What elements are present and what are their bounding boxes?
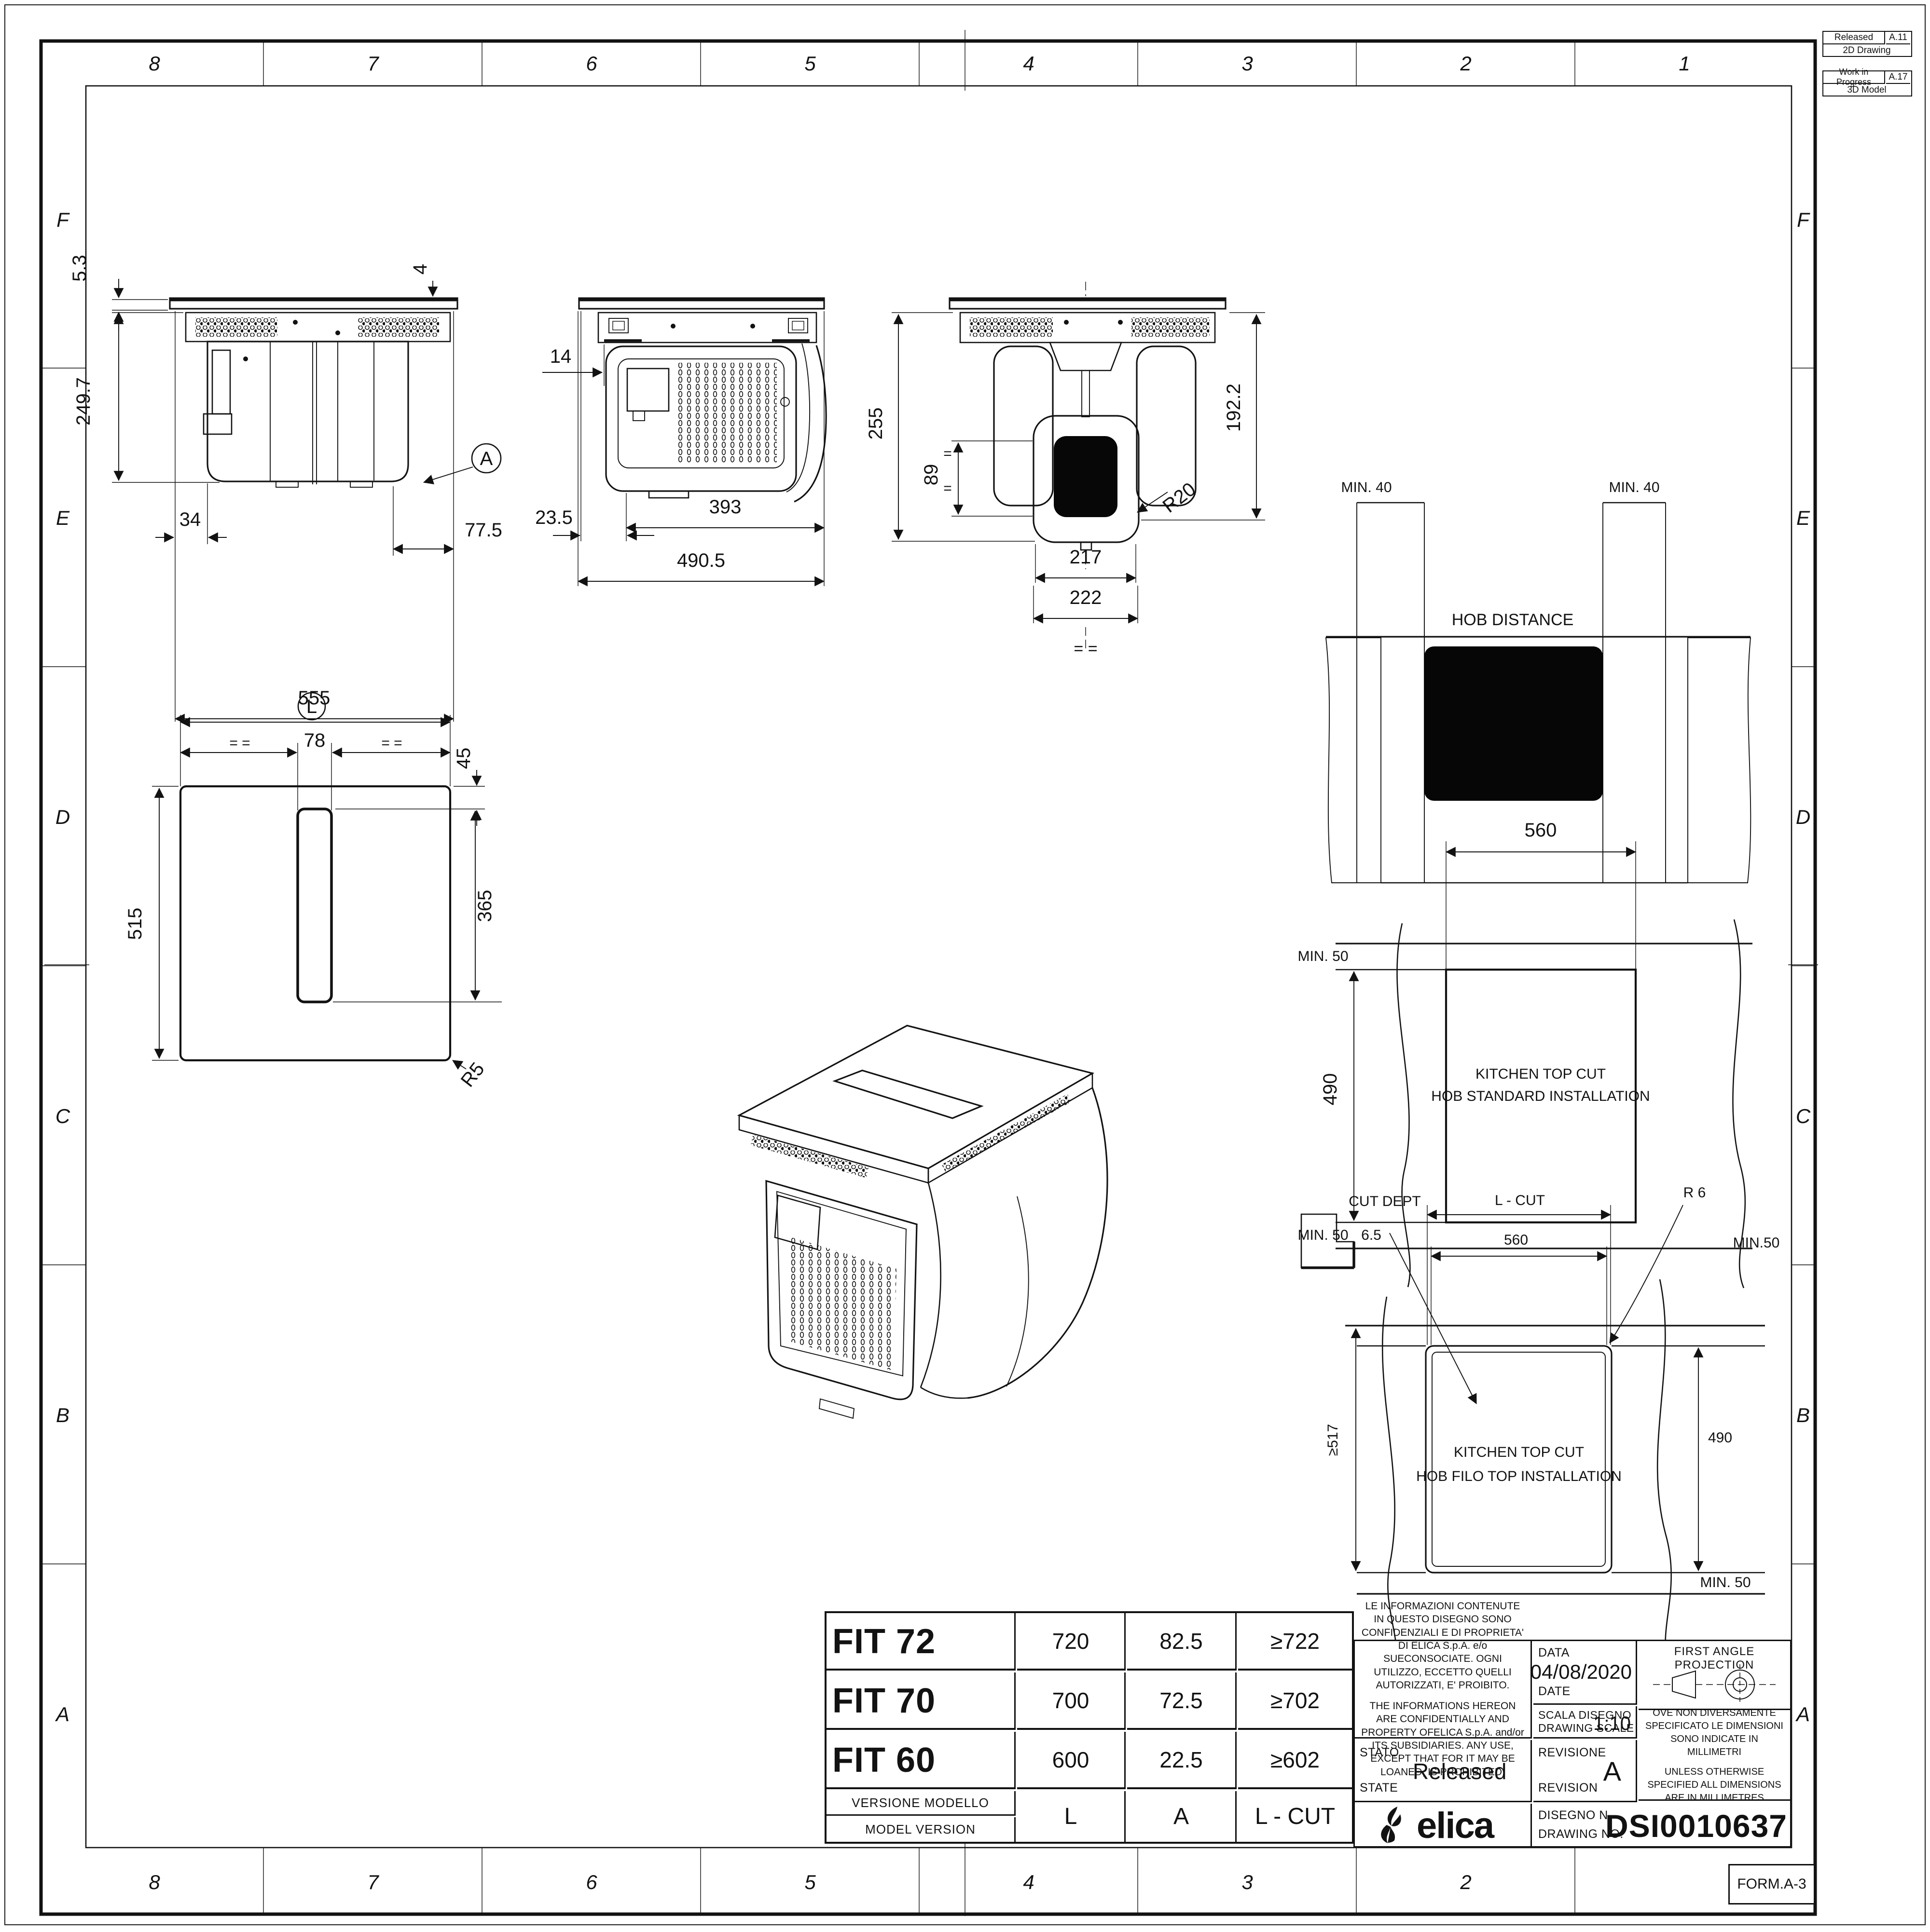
projection-cell: FIRST ANGLE PROJECTION <box>1639 1641 1790 1710</box>
cut-dept-label: CUT DEPT <box>1349 1193 1420 1209</box>
side-section-view: 14 23.5 393 490.5 <box>535 298 826 586</box>
dim-total-width: 490.5 <box>677 550 725 571</box>
revision-kind: 3D Model <box>1823 85 1910 96</box>
grid-col-bottom: 3 <box>1241 1871 1253 1893</box>
front-section-view: 5.3 4 249.7 34 77.5 555 A <box>69 255 502 722</box>
revision-kind: 2D Drawing <box>1823 45 1910 56</box>
grid-col-top: 7 <box>367 52 379 75</box>
grid-row-left: E <box>56 507 70 529</box>
grid-row-right: D <box>1796 806 1810 828</box>
grid-row-right: B <box>1796 1404 1810 1426</box>
equal-mark: = <box>943 480 952 496</box>
units-note-cell: OVE NON DIVERSAMENTE SPECIFICATO LE DIME… <box>1639 1712 1790 1801</box>
dim-body-width: 393 <box>709 496 742 518</box>
dim-cut-width: 560 <box>1504 1232 1528 1248</box>
equal-marks: = = <box>1074 640 1097 658</box>
dim-slot-offset: 45 <box>453 748 474 769</box>
min-bottom: MIN. 50 <box>1700 1575 1751 1590</box>
grid-col-top: 8 <box>149 52 160 75</box>
state-cell: STATO STATE Released <box>1355 1740 1532 1802</box>
dim-slot-width: 78 <box>304 730 326 751</box>
units-note-en: UNLESS OTHERWISE SPECIFIED ALL DIMENSION… <box>1644 1766 1784 1805</box>
dim-offset-front: 14 <box>550 346 572 367</box>
brand-cell: elica <box>1355 1804 1532 1846</box>
grid-row-right: C <box>1796 1105 1811 1127</box>
table-cell-lcut: ≥722 <box>1238 1613 1352 1671</box>
revision-status: Work in Progress <box>1823 71 1885 84</box>
grid-col-bottom: 6 <box>586 1871 597 1893</box>
grid-col-top: 1 <box>1679 52 1690 75</box>
footer-col-lcut: L - CUT <box>1238 1791 1352 1842</box>
grid-row-left: F <box>56 208 70 231</box>
table-cell-lcut: ≥602 <box>1238 1732 1352 1789</box>
form-designation: FORM.A-3 <box>1728 1864 1815 1905</box>
dim-corner-radius: R 6 <box>1683 1185 1706 1201</box>
filo-cut-view: CUT DEPT 6.5 L - CUT 560 R 6 MIN.50 ≥517… <box>1301 1185 1779 1665</box>
revision-status: Released <box>1823 32 1885 44</box>
scale-cell: SCALA DISEGNO DRAWING SCALE 1:10 <box>1533 1706 1637 1739</box>
date-label-en: DATE <box>1538 1685 1571 1699</box>
table-cell-model: FIT 70 <box>827 1672 1016 1730</box>
dim-duct-center: 89 <box>921 464 942 486</box>
equal-marks: = = <box>229 735 250 751</box>
drawing-no-label-it: DISEGNO N. <box>1538 1809 1612 1822</box>
cut-caption-1: KITCHEN TOP CUT <box>1475 1066 1606 1082</box>
dim-slot-length: 365 <box>474 890 496 922</box>
dim-radius: R20 <box>1159 479 1200 517</box>
table-cell-lcut: ≥702 <box>1238 1672 1352 1730</box>
table-cell-l: 700 <box>1017 1672 1126 1730</box>
grid-col-top: 2 <box>1460 52 1471 75</box>
drawing-sheet: 8 7 6 5 4 3 2 1 8 7 6 5 4 3 2 F E D C B … <box>0 0 1930 1930</box>
table-cell-model: FIT 60 <box>827 1732 1016 1789</box>
revision-label-it: REVISIONE <box>1538 1746 1606 1760</box>
model-version-table: FIT 72 720 82.5 ≥722 FIT 70 700 72.5 ≥70… <box>825 1611 1354 1844</box>
dim-outlet-width: 217 <box>1070 547 1102 568</box>
rear-section-view: 255 89 = = 192.2 217 222 = = R20 <box>865 282 1265 658</box>
table-cell-l: 720 <box>1017 1613 1126 1671</box>
grid-col-bottom: 4 <box>1023 1871 1034 1893</box>
revision-box-2d: Released A.11 2D Drawing <box>1822 31 1912 57</box>
lcut-label: L - CUT <box>1495 1192 1545 1208</box>
min-distance-left: MIN. 40 <box>1341 480 1392 495</box>
grid-row-right: A <box>1795 1703 1810 1726</box>
first-angle-projection-icon <box>1639 1660 1790 1709</box>
revision-id: A.11 <box>1886 32 1910 44</box>
state-label-en: STATE <box>1360 1781 1398 1795</box>
standard-cut-view: 560 MIN. 50 490 KITCHEN TOP CUT HOB STAN… <box>1297 820 1752 1288</box>
disclaimer-italian: LE INFORMAZIONI CONTENUTE IN QUESTO DISE… <box>1360 1600 1526 1692</box>
grid-row-left: B <box>56 1404 69 1426</box>
hob-glass-top <box>1424 646 1603 801</box>
dim-min-depth: ≥517 <box>1325 1424 1341 1456</box>
grid-row-right: F <box>1797 208 1810 231</box>
table-cell-a: 82.5 <box>1127 1613 1237 1671</box>
elica-flame-icon <box>1372 1804 1416 1846</box>
table-cell-a: 22.5 <box>1127 1732 1237 1789</box>
brand-wordmark: elica <box>1417 1805 1493 1847</box>
dim-glass-thickness: 5.3 <box>69 255 90 282</box>
dim-balloon-l: L <box>306 696 317 717</box>
min-distance-right: MIN. 40 <box>1609 480 1659 495</box>
dim-offset-left: 34 <box>179 509 201 530</box>
drawing-number-cell: DISEGNO N. DRAWING NO. DSI0010637 <box>1533 1804 1790 1846</box>
grid-col-bottom: 2 <box>1460 1871 1471 1893</box>
grid-col-top: 4 <box>1023 52 1034 75</box>
grid-row-left: A <box>55 1703 69 1726</box>
grid-col-bottom: 5 <box>804 1871 816 1893</box>
cut-caption-2: HOB STANDARD INSTALLATION <box>1431 1088 1650 1104</box>
dim-cut-depth: 490 <box>1320 1073 1341 1106</box>
grid-col-top: 3 <box>1241 52 1253 75</box>
dim-cut-depth: 490 <box>1708 1430 1732 1446</box>
model-name: FIT 70 <box>832 1681 936 1721</box>
dim-outlet-outer: 222 <box>1070 587 1102 608</box>
min-bottom: MIN. 50 <box>1297 1227 1348 1243</box>
state-label-it: STATO <box>1360 1746 1399 1760</box>
grid-col-top: 6 <box>586 52 597 75</box>
date-label-it: DATA <box>1538 1646 1570 1660</box>
grid-col-bottom: 7 <box>367 1871 379 1893</box>
dim-height: 255 <box>865 408 886 440</box>
footer-label-en: MODEL VERSION <box>827 1817 1016 1842</box>
footer-label-it: VERSIONE MODELLO <box>827 1791 1016 1816</box>
equal-marks: = = <box>381 735 402 751</box>
dim-offset-left: 23.5 <box>535 507 573 528</box>
units-note-it: OVE NON DIVERSAMENTE SPECIFICATO LE DIME… <box>1644 1707 1784 1759</box>
cut-caption-2: HOB FILO TOP INSTALLATION <box>1416 1468 1622 1484</box>
date-value: 04/08/2020 <box>1530 1660 1632 1684</box>
dim-radius: R5 <box>457 1058 489 1091</box>
dim-offset-right: 77.5 <box>465 520 502 541</box>
hob-distance-title: HOB DISTANCE <box>1452 611 1574 629</box>
disclaimer-cell: LE INFORMAZIONI CONTENUTE IN QUESTO DISE… <box>1355 1641 1532 1739</box>
state-value: Released <box>1413 1758 1506 1784</box>
revision-id: A.17 <box>1886 71 1910 84</box>
cut-dept-value: 6.5 <box>1361 1227 1381 1243</box>
dim-height: 249.7 <box>73 377 94 425</box>
drawing-number: DSI0010637 <box>1605 1808 1787 1844</box>
grid-row-left: D <box>55 806 70 828</box>
dim-cut-width: 560 <box>1525 820 1557 841</box>
min-top: MIN. 50 <box>1297 948 1348 964</box>
table-cell-l: 600 <box>1017 1732 1126 1789</box>
revision-value: A <box>1603 1755 1621 1787</box>
footer-col-l: L <box>1017 1791 1126 1842</box>
revision-label-en: REVISION <box>1538 1781 1598 1795</box>
model-name: FIT 72 <box>832 1622 936 1661</box>
scale-value: 1:10 <box>1593 1713 1631 1735</box>
plan-view: L = = 78 = = 45 515 365 R5 <box>124 693 502 1091</box>
date-cell: DATA DATE 04/08/2020 <box>1533 1641 1637 1705</box>
model-name: FIT 60 <box>832 1740 936 1780</box>
isometric-view <box>739 1026 1107 1418</box>
equal-mark: = <box>943 446 952 462</box>
grid-col-bottom: 8 <box>149 1871 160 1893</box>
cut-caption-1: KITCHEN TOP CUT <box>1454 1444 1584 1460</box>
grid-row-left: C <box>55 1105 70 1127</box>
footer-col-a: A <box>1127 1791 1237 1842</box>
grid-row-right: E <box>1796 507 1810 529</box>
title-block: LE INFORMAZIONI CONTENUTE IN QUESTO DISE… <box>1353 1640 1792 1848</box>
min-top: MIN.50 <box>1733 1235 1780 1251</box>
revision-cell: REVISIONE REVISION A <box>1533 1740 1637 1802</box>
dim-body-height: 192.2 <box>1223 384 1244 432</box>
dim-glass-overhang: 4 <box>410 264 431 274</box>
table-cell-a: 72.5 <box>1127 1672 1237 1730</box>
revision-box-3d: Work in Progress A.17 3D Model <box>1822 70 1912 96</box>
table-cell-model: FIT 72 <box>827 1613 1016 1671</box>
grid-col-top: 5 <box>804 52 816 75</box>
detail-balloon-a: A <box>480 448 493 469</box>
dim-depth: 515 <box>124 908 146 940</box>
